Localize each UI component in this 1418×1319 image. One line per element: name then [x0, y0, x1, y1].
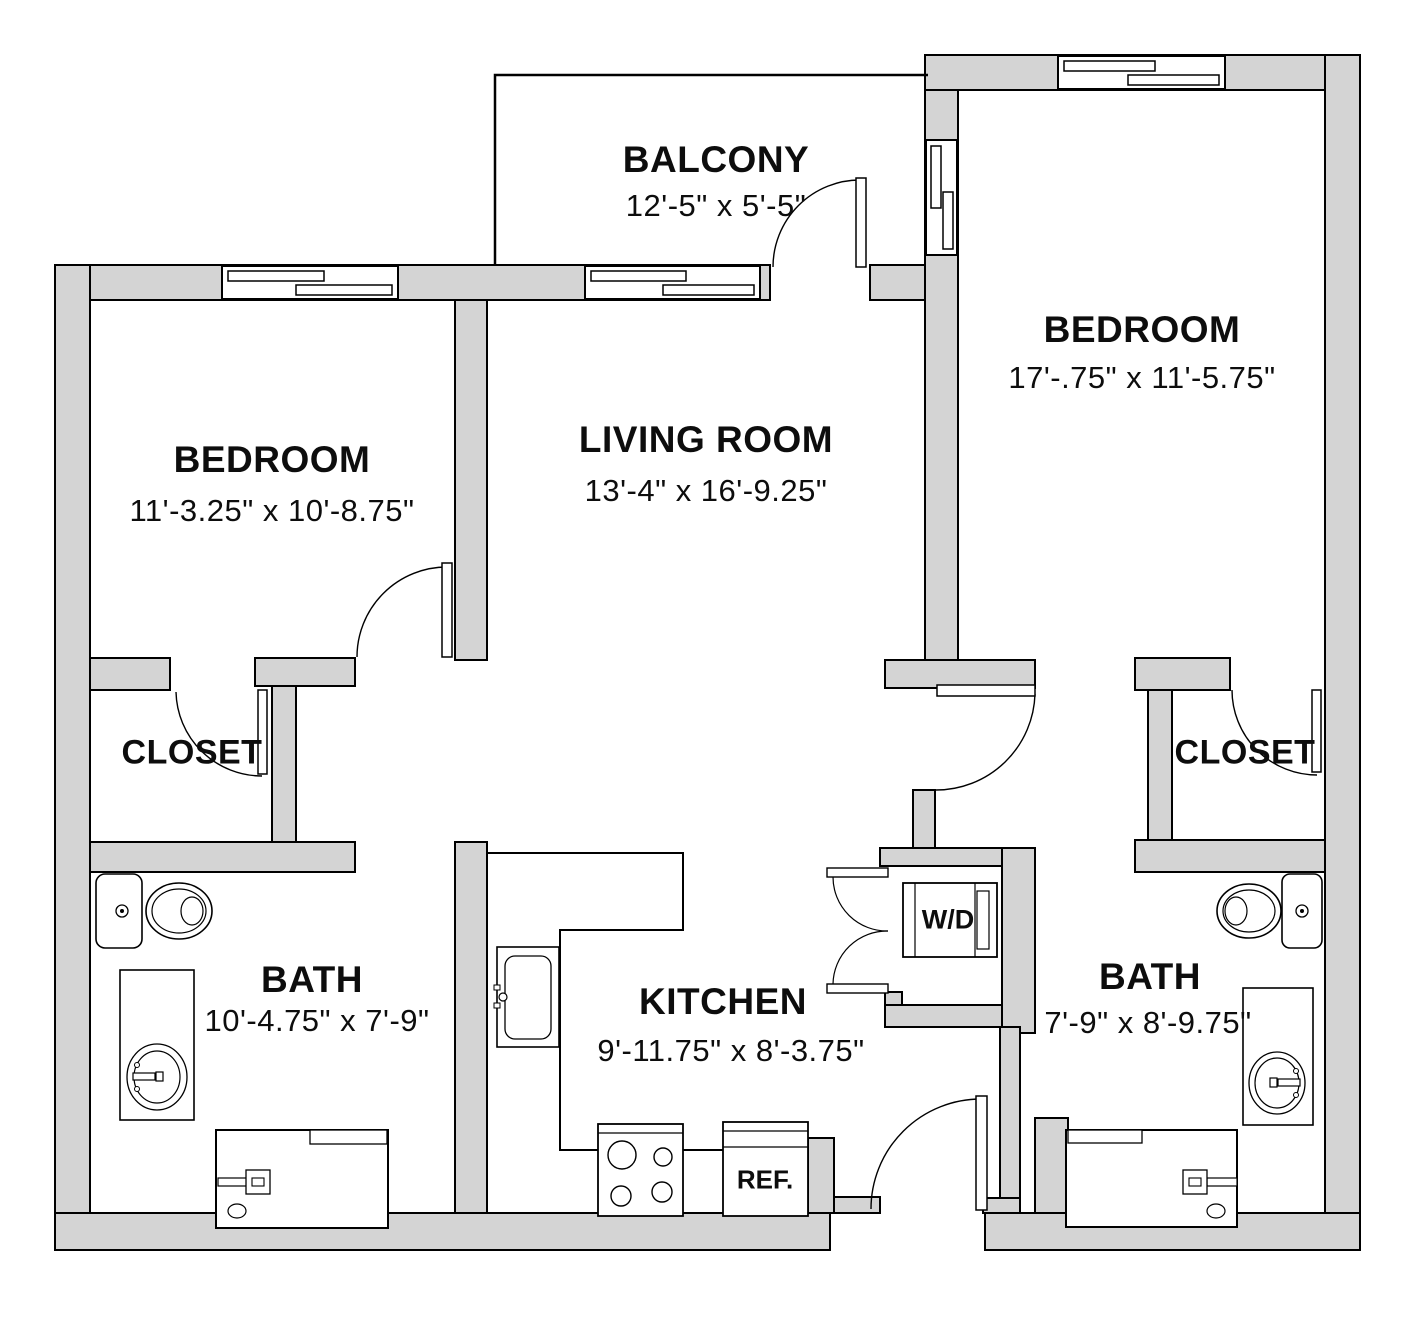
bath-right-fixtures — [1066, 874, 1322, 1227]
kitchen-label: KITCHEN — [639, 981, 807, 1023]
closet-right-label: CLOSET — [1175, 734, 1316, 773]
bath-left-fixtures — [96, 874, 388, 1228]
wall-wd-right — [1002, 848, 1035, 1033]
wall-entry-stub-left — [830, 1197, 880, 1213]
wall-bath-right-step — [1035, 1118, 1068, 1213]
wall-closet-left-bar — [255, 658, 355, 686]
wall-left-outer — [55, 265, 90, 1250]
burner — [654, 1148, 672, 1166]
bath-left-dims: 10'-4.75" x 7'-9" — [204, 1003, 429, 1039]
door-bedroom-left — [357, 563, 452, 657]
wall-bedroom-left-divider — [455, 300, 487, 660]
window-balcony-side — [926, 140, 957, 255]
door-wd-bifold — [827, 868, 888, 993]
bedroom-right-dims: 17'-.75" x 11'-5.75" — [1008, 360, 1275, 396]
kitchen-sink — [494, 947, 559, 1047]
wall-top-mid — [870, 265, 930, 300]
vanity-right — [1243, 988, 1313, 1125]
wall-hall-bar — [885, 660, 1035, 688]
wall-bath-right-left — [1000, 1027, 1020, 1213]
balcony-dims: 12'-5" x 5'-5" — [626, 188, 806, 224]
window-bedroom-right — [1058, 56, 1225, 89]
bedroom-left-dims: 11'-3.25" x 10'-8.75" — [129, 493, 414, 529]
stove — [598, 1124, 683, 1216]
refrigerator-label: REF. — [737, 1165, 793, 1196]
toilet-left — [96, 874, 212, 948]
wall-wd-top — [880, 848, 1005, 866]
wall-bath-left-top — [90, 842, 355, 872]
toilet-right — [1217, 874, 1322, 948]
wall-closet-right-stem — [1148, 690, 1172, 840]
wall-entry-stub-right — [983, 1198, 1020, 1213]
bedroom-right-label: BEDROOM — [1044, 309, 1241, 351]
bath-right-label: BATH — [1099, 956, 1201, 998]
wall-bottom-left — [55, 1213, 830, 1250]
washer-dryer-label: W/D — [922, 905, 974, 936]
balcony-label: BALCONY — [623, 139, 809, 181]
living-room-label: LIVING ROOM — [579, 419, 833, 461]
bath-left-label: BATH — [261, 959, 363, 1001]
wall-hall-stem — [913, 790, 935, 852]
bathtub-left — [216, 1130, 388, 1228]
window-living-room — [585, 266, 760, 299]
wall-bath-right-top — [1135, 840, 1325, 872]
wall-bedroom-left-stub — [90, 658, 170, 690]
window-bedroom-left — [222, 266, 398, 299]
burner — [608, 1141, 636, 1169]
floor-plan: BALCONY 12'-5" x 5'-5" BEDROOM 11'-3.25"… — [0, 0, 1418, 1319]
burner — [611, 1186, 631, 1206]
door-bedroom-right — [936, 685, 1035, 790]
wall-right-outer — [1325, 55, 1360, 1250]
vanity-left — [120, 970, 194, 1120]
walls — [55, 55, 1360, 1250]
wall-closet-right-bar — [1135, 658, 1230, 690]
wall-closet-left-stem — [272, 686, 296, 842]
bath-right-dims: 7'-9" x 8'-9.75" — [1044, 1005, 1251, 1041]
closet-left-label: CLOSET — [122, 734, 263, 773]
wall-ref-stub — [808, 1138, 834, 1213]
kitchen-dims: 9'-11.75" x 8'-3.75" — [597, 1033, 864, 1069]
burner — [652, 1182, 672, 1202]
living-room-dims: 13'-4" x 16'-9.25" — [585, 473, 828, 509]
wall-wd-step-b — [885, 1005, 1002, 1027]
bedroom-left-label: BEDROOM — [174, 439, 371, 481]
door-entry — [871, 1096, 987, 1210]
wall-bath-kitchen-divider — [455, 842, 487, 1213]
bathtub-right — [1066, 1130, 1237, 1227]
